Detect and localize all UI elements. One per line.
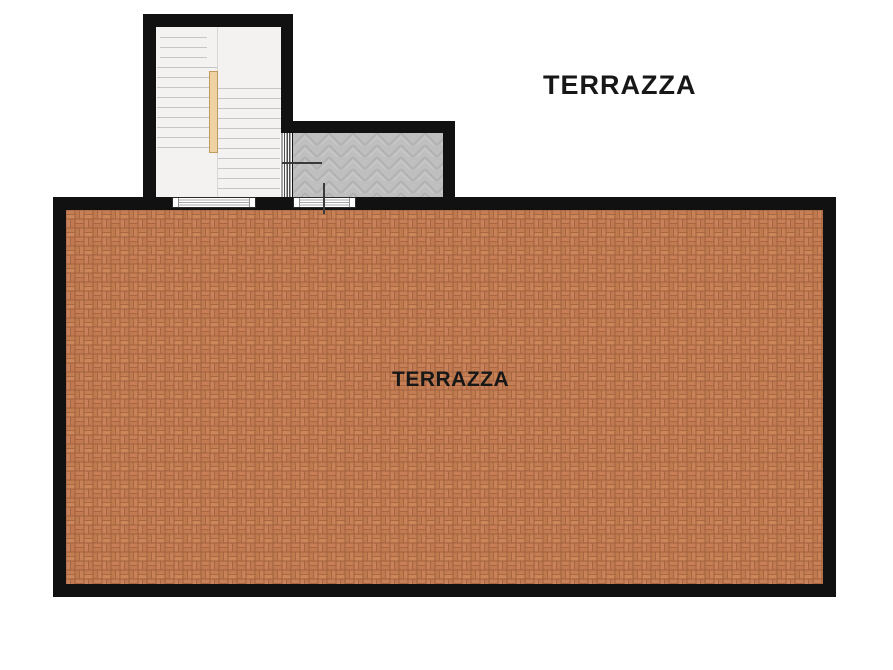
threshold-stairs-door xyxy=(172,197,256,208)
upper-terrace-label: TERRAZZA xyxy=(543,70,696,101)
main-terrace-room xyxy=(53,197,836,597)
stair-treads-left xyxy=(157,67,217,155)
terrace-brick-floor xyxy=(66,210,823,584)
staircase-room xyxy=(143,14,293,197)
floor-plan: TERRAZZA TERRAZZA xyxy=(0,0,893,670)
threshold-end-cap xyxy=(249,198,255,207)
stair-treads-right xyxy=(218,88,281,154)
leader-line-horizontal xyxy=(282,162,322,164)
door-divider xyxy=(280,133,292,197)
threshold-sill-lines xyxy=(179,198,249,207)
landing-herringbone-floor xyxy=(293,133,443,197)
threshold-end-cap xyxy=(349,198,355,207)
stair-treads-upper-left xyxy=(160,37,207,69)
leader-line-vertical xyxy=(323,183,325,214)
main-terrace-label: TERRAZZA xyxy=(392,368,509,392)
stair-handrail xyxy=(209,71,218,153)
stair-treads-lower-right xyxy=(218,158,281,190)
upper-landing-room xyxy=(293,121,455,197)
